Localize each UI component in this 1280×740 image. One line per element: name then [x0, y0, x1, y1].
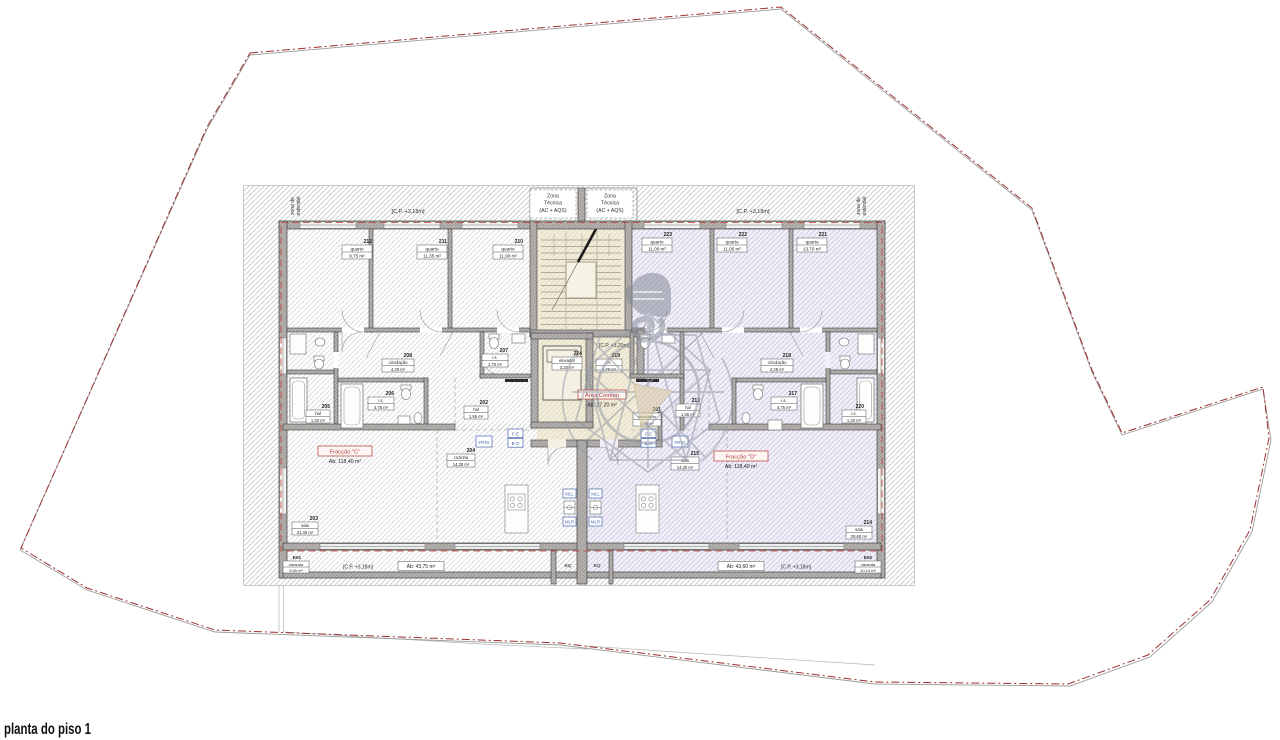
svg-text:Zona: Zona	[604, 194, 616, 200]
svg-text:BQ: BQ	[565, 563, 572, 569]
svg-text:Técnica: Técnica	[544, 201, 562, 207]
svg-text:11,00 m²: 11,00 m²	[648, 247, 666, 252]
svg-text:E01: E01	[293, 555, 302, 560]
svg-text:221: 221	[819, 232, 828, 238]
svg-text:i.s.: i.s.	[781, 398, 786, 403]
svg-text:207: 207	[500, 348, 509, 354]
svg-text:Ab: 43,75 m²: Ab: 43,75 m²	[407, 564, 436, 570]
svg-text:208: 208	[404, 353, 413, 359]
svg-text:210: 210	[515, 239, 524, 245]
svg-text:202: 202	[480, 400, 489, 406]
svg-text:[C.P. +3,18m]: [C.P. +3,18m]	[736, 209, 770, 215]
svg-text:1,55 m²: 1,55 m²	[469, 414, 484, 419]
svg-text:i.s.: i.s.	[378, 398, 383, 403]
svg-text:quarto: quarto	[425, 247, 438, 252]
svg-text:1,20 m²: 1,20 m²	[311, 418, 326, 423]
svg-text:F-E: F-E	[512, 432, 519, 437]
svg-text:1,70 m²: 1,70 m²	[488, 362, 503, 367]
svg-text:25,60 m²: 25,60 m²	[851, 534, 868, 539]
svg-text:9,75 m²: 9,75 m²	[349, 254, 365, 259]
svg-text:14,30 m²: 14,30 m²	[677, 465, 694, 470]
svg-text:sala: sala	[855, 527, 863, 532]
svg-text:estendal: estendal	[296, 197, 302, 216]
svg-text:205: 205	[322, 404, 331, 410]
svg-text:4,75 m²: 4,75 m²	[374, 405, 389, 410]
svg-text:9,45 m²: 9,45 m²	[289, 568, 303, 573]
svg-text:sala: sala	[301, 523, 309, 528]
svg-text:planta do piso 1: planta do piso 1	[4, 721, 91, 738]
svg-text:Ab: 43,60 m²: Ab: 43,60 m²	[727, 564, 756, 570]
svg-text:FRIG: FRIG	[479, 440, 490, 445]
svg-text:21,40 m²: 21,40 m²	[297, 530, 314, 535]
svg-text:220: 220	[856, 404, 865, 410]
svg-text:estendal: estendal	[862, 197, 868, 216]
svg-text:B-O: B-O	[512, 441, 520, 446]
svg-text:hal: hal	[685, 405, 691, 410]
svg-text:218: 218	[783, 353, 792, 359]
svg-text:MLR: MLR	[565, 520, 574, 525]
svg-text:quarto: quarto	[350, 247, 363, 252]
svg-text:4,25 m²: 4,25 m²	[770, 367, 785, 372]
svg-text:215: 215	[691, 451, 700, 457]
svg-text:BQ: BQ	[594, 563, 601, 569]
svg-text:11,35 m²: 11,35 m²	[423, 254, 441, 259]
svg-text:212: 212	[364, 239, 373, 245]
svg-text:cozinha: cozinha	[454, 455, 469, 460]
svg-text:Técnica: Técnica	[601, 201, 619, 207]
svg-text:Ab: 118,40 m²: Ab: 118,40 m²	[725, 464, 757, 470]
svg-text:[C.P. +3,18m]: [C.P. +3,18m]	[343, 565, 374, 571]
svg-text:4,75 m²: 4,75 m²	[777, 405, 792, 410]
svg-text:204: 204	[467, 448, 476, 454]
svg-text:hal: hal	[473, 407, 479, 412]
svg-text:[C.P. +3,18m]: [C.P. +3,18m]	[391, 209, 425, 215]
svg-text:14,30 m²: 14,30 m²	[453, 462, 470, 467]
svg-text:i.s.: i.s.	[851, 411, 856, 416]
svg-text:Ab: 27,20 m²: Ab: 27,20 m²	[587, 403, 617, 409]
svg-text:11,05 m²: 11,05 m²	[723, 247, 741, 252]
svg-text:quarto: quarto	[501, 247, 514, 252]
svg-text:[C.P. +3,18m]: [C.P. +3,18m]	[781, 565, 812, 571]
svg-text:quarto: quarto	[725, 240, 738, 245]
svg-text:Fracção "C": Fracção "C"	[330, 450, 361, 456]
svg-text:Zona: Zona	[547, 194, 559, 200]
svg-text:4,25 m²: 4,25 m²	[391, 367, 406, 372]
svg-text:222: 222	[739, 232, 748, 238]
svg-text:13,70 m²: 13,70 m²	[803, 247, 822, 252]
svg-text:E02: E02	[864, 555, 873, 560]
svg-text:circulação: circulação	[768, 360, 788, 365]
svg-text:hal: hal	[315, 411, 321, 416]
svg-text:(AC + AQS): (AC + AQS)	[539, 208, 567, 214]
svg-text:1,20 m²: 1,20 m²	[847, 418, 862, 423]
svg-text:quarto: quarto	[805, 240, 818, 245]
svg-text:circulação: circulação	[389, 360, 409, 365]
svg-text:(AC + AQS): (AC + AQS)	[596, 208, 624, 214]
svg-text:203: 203	[310, 516, 319, 522]
svg-text:214: 214	[864, 520, 873, 526]
svg-text:MLL: MLL	[565, 492, 574, 497]
svg-text:Fracção "D": Fracção "D"	[726, 455, 757, 461]
svg-text:10,10 m²: 10,10 m²	[860, 568, 876, 573]
svg-text:quarto: quarto	[650, 240, 663, 245]
svg-text:Ab: 118,40 m²: Ab: 118,40 m²	[329, 459, 361, 465]
svg-text:i.s.: i.s.	[492, 355, 497, 360]
svg-text:varanda: varanda	[861, 562, 876, 567]
svg-text:206: 206	[386, 391, 395, 397]
svg-text:varanda: varanda	[289, 562, 304, 567]
svg-text:MLR: MLR	[591, 520, 600, 525]
svg-text:MLL: MLL	[591, 492, 600, 497]
svg-text:11,90 m²: 11,90 m²	[499, 254, 517, 259]
svg-text:211: 211	[439, 239, 447, 245]
svg-text:217: 217	[789, 391, 798, 397]
svg-text:223: 223	[664, 232, 673, 238]
